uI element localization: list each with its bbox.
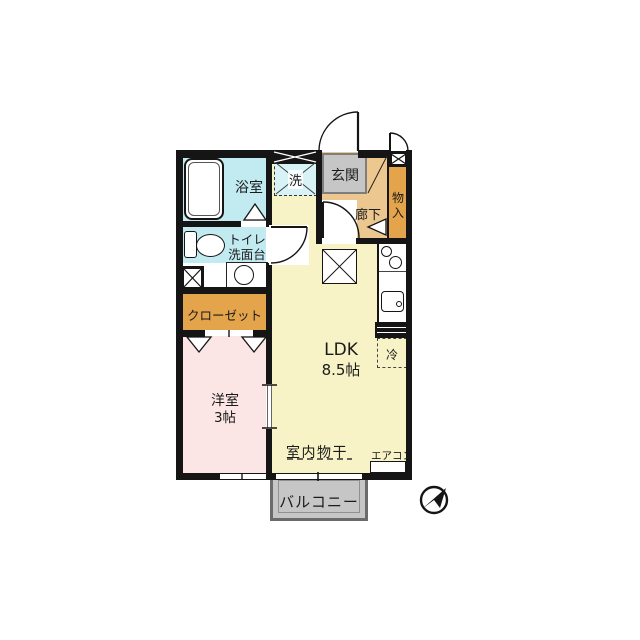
sink-drain xyxy=(396,301,402,307)
column-box-ldk xyxy=(322,249,357,284)
wall-closet-bottom-left xyxy=(176,330,205,337)
western-room-size: 3帖 xyxy=(192,406,258,426)
indoor-drying-label: 室内物干 xyxy=(286,442,348,462)
wall-storage-partition xyxy=(387,153,389,238)
counter-end-hatch xyxy=(375,322,409,338)
hallway-label: 廊下 xyxy=(350,204,386,223)
toilet-bowl xyxy=(196,234,225,257)
bathtub-inner-line xyxy=(188,162,220,216)
wall-entrance-left xyxy=(316,150,322,244)
wall-bottom-b xyxy=(266,473,276,480)
wall-bottom-c xyxy=(362,473,412,480)
bathtub xyxy=(184,158,224,220)
laundry-label: 洗 xyxy=(288,170,303,189)
stove-burner-small xyxy=(381,246,392,257)
stove-burner-large xyxy=(389,256,402,269)
window-western-room xyxy=(220,473,266,480)
entrance-label: 玄関 xyxy=(326,165,364,185)
wall-top-a xyxy=(176,150,272,158)
kitchen-edge-line xyxy=(377,244,379,322)
room-ldk-left xyxy=(272,158,316,473)
floor-plan: 浴室 洗 玄関 廊下 物入 トイレ 洗面台 クローゼット 洋室 3帖 LDK 8… xyxy=(0,0,640,640)
wall-left xyxy=(176,150,183,480)
opening-jamb-lines xyxy=(268,385,272,428)
ldk-size: 8.5帖 xyxy=(306,359,376,380)
ldk-label: LDK xyxy=(306,340,376,360)
toilet-label-line2: 洗面台 xyxy=(222,244,272,263)
vanity-bowl xyxy=(234,265,254,285)
storage-door-arc xyxy=(390,133,408,151)
entrance-door-arc xyxy=(319,112,358,151)
balcony-label: バルコニー xyxy=(270,491,368,512)
wall-vanity-bottom xyxy=(176,287,272,294)
wall-center-vert-c xyxy=(266,429,272,474)
wall-hall-bottom xyxy=(356,238,412,244)
hatch-slit xyxy=(377,327,407,329)
counter-divider-line xyxy=(378,271,406,272)
bathroom-label: 浴室 xyxy=(228,177,270,197)
hatch-slit xyxy=(377,332,407,334)
window-over-laundry xyxy=(272,150,318,164)
wall-center-vert-b xyxy=(266,263,272,384)
closet-label: クローゼット xyxy=(183,305,266,324)
wall-bottom-a xyxy=(176,473,220,480)
window-balcony-door xyxy=(276,473,362,480)
storage-label: 物入 xyxy=(390,191,406,221)
wall-right xyxy=(406,150,412,480)
wall-bath-toilet xyxy=(183,221,241,227)
north-arrow-icon xyxy=(421,487,447,513)
wall-top-c xyxy=(358,150,390,158)
refrigerator-label: 冷 xyxy=(377,346,407,363)
aircon-label: エアコン xyxy=(371,448,413,463)
